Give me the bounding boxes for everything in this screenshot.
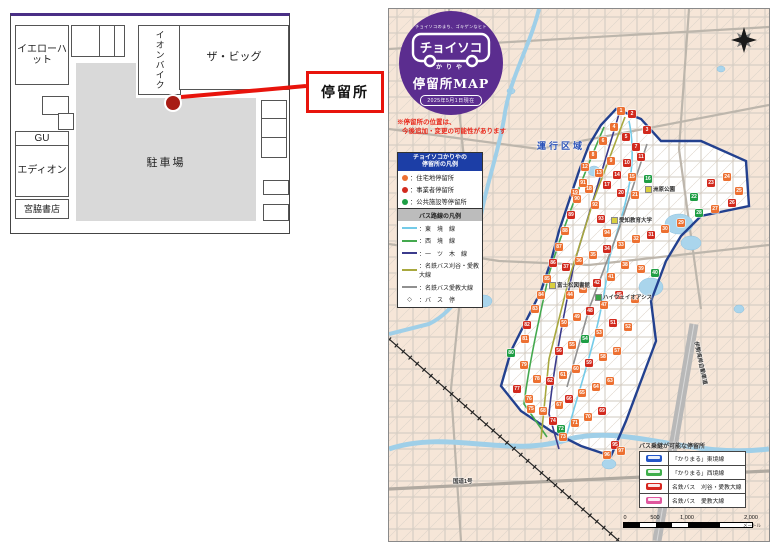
bus-icon-meitetsu-kariya <box>646 483 662 490</box>
stop-marker: 16 <box>644 175 652 183</box>
stop-marker: 59 <box>585 359 593 367</box>
stop-marker: 30 <box>661 225 669 233</box>
legend-row: ：名鉄バス刈谷・愛教大線 <box>398 259 482 281</box>
stop-marker: 92 <box>591 201 599 209</box>
legend-label: ：一 ツ 木 線 <box>419 249 467 258</box>
stop-marker: 74 <box>549 417 557 425</box>
bus-icon-meitetsu <box>646 497 662 504</box>
stop-marker: 87 <box>555 243 563 251</box>
stop-marker: 97 <box>617 447 625 455</box>
stop-marker: 83 <box>531 305 539 313</box>
stop-marker: 44 <box>566 291 574 299</box>
site-diagram: イエローハット GU エディオン 宮脇書店 イオンバイク ザ・ビッグ 駐車場 <box>10 13 290 234</box>
logo-name-text: チョイソコ <box>420 41 483 55</box>
stop-marker: 55 <box>568 341 576 349</box>
small-building <box>261 118 287 139</box>
stop-marker: 35 <box>589 251 597 259</box>
stop-marker: 26 <box>728 199 736 207</box>
transfer-label: 名鉄バス 刈谷・愛教大線 <box>669 480 746 494</box>
transfer-row: 名鉄バス 愛教大線 <box>640 494 746 508</box>
stop-marker: 28 <box>695 209 703 217</box>
business-stop-dot <box>402 187 408 193</box>
stop-marker: 60 <box>572 365 580 373</box>
legend-label: ：名鉄バス刈谷・愛教大線 <box>419 261 480 279</box>
legend-label: ：事業者停留所 <box>410 185 454 194</box>
logo-city: かりや <box>436 62 466 71</box>
stop-marker: 23 <box>707 179 715 187</box>
transfer-row: 名鉄バス 刈谷・愛教大線 <box>640 480 746 494</box>
stop-marker: 75 <box>527 405 535 413</box>
transfer-legend-title: バス乗継が可能な停留所 <box>639 441 746 450</box>
stop-marker: 10 <box>623 159 631 167</box>
route-line-swatch <box>402 286 417 288</box>
legend-row: ：東 境 線 <box>398 221 482 234</box>
route-line-swatch <box>402 240 417 242</box>
small-building <box>71 25 101 57</box>
transfer-legend: バス乗継が可能な停留所 「かりまる」東境線 「かりまる」西境線 名鉄バス 刈谷・… <box>639 441 746 508</box>
stop-marker: 41 <box>607 273 615 281</box>
stop-marker: 80 <box>507 349 515 357</box>
stop-marker: 20 <box>617 189 625 197</box>
stop-marker: 84 <box>537 291 545 299</box>
store-label: エディオン <box>17 165 66 177</box>
store-miyawaki: 宮脇書店 <box>15 199 69 219</box>
stop-marker: 36 <box>575 257 583 265</box>
notice-line2: 今後追加・変更の可能性があります <box>402 127 506 136</box>
stop-marker: 33 <box>617 241 625 249</box>
route-line-swatch <box>402 269 417 271</box>
transfer-label: 「かりまる」東境線 <box>669 452 746 466</box>
stop-marker: 89 <box>567 211 575 219</box>
stop-marker: 37 <box>562 263 570 271</box>
stop-marker: 1 <box>617 107 625 115</box>
stop-marker: 82 <box>523 321 531 329</box>
stop-marker: 12 <box>581 163 589 171</box>
bus-stop-dot <box>164 94 182 112</box>
route-line-swatch <box>402 227 417 229</box>
scale-tick: 2,000 <box>744 515 758 521</box>
stop-marker: 22 <box>690 193 698 201</box>
stop-callout-label: 停留所 <box>306 71 384 113</box>
stop-marker: 48 <box>586 307 594 315</box>
stop-marker: 47 <box>600 301 608 309</box>
legend-label: ：公共施設等停留所 <box>410 197 467 206</box>
stop-marker: 51 <box>609 319 617 327</box>
store-label: ザ・ビッグ <box>207 51 262 64</box>
stop-marker: 49 <box>573 313 581 321</box>
scale-tick: 0 <box>623 515 626 521</box>
store-label: GU <box>35 133 50 145</box>
small-building <box>261 100 287 120</box>
legend-label: ：バ ス 停 <box>419 295 455 304</box>
bus-icon-higashi <box>646 455 662 462</box>
stop-marker: 65 <box>578 389 586 397</box>
store-the-big: ザ・ビッグ <box>179 25 289 90</box>
stop-marker: 68 <box>539 407 547 415</box>
page: イエローハット GU エディオン 宮脇書店 イオンバイク ザ・ビッグ 駐車場 停… <box>0 0 770 544</box>
stop-marker: 17 <box>603 181 611 189</box>
stop-marker: 8 <box>589 151 597 159</box>
scale-tick: 1,000 <box>680 515 694 521</box>
stops-legend-title: チョイソコかりやの 停留所の凡例 <box>398 153 482 171</box>
stop-marker: 72 <box>557 425 565 433</box>
transfer-row: 「かりまる」西境線 <box>640 466 746 480</box>
stop-marker: 52 <box>624 323 632 331</box>
map-place-label: 国道1号 <box>453 477 473 485</box>
notice-text: ※停留所の位置は、 今後追加・変更の可能性があります <box>397 118 506 136</box>
stop-marker: 5 <box>622 133 630 141</box>
stop-marker: 31 <box>647 231 655 239</box>
stop-marker: 54 <box>581 335 589 343</box>
stop-map: 1234567891011121314151617181920212223242… <box>388 8 770 542</box>
stop-marker: 90 <box>573 195 581 203</box>
legend-row: ◇：バ ス 停 <box>398 293 482 308</box>
stop-marker: 58 <box>599 353 607 361</box>
stop-marker: 9 <box>607 157 615 165</box>
stop-marker: 14 <box>613 171 621 179</box>
stop-marker: 25 <box>735 187 743 195</box>
transfer-row: 「かりまる」東境線 <box>640 452 746 466</box>
stop-marker: 3 <box>643 126 651 134</box>
stop-marker: 81 <box>521 335 529 343</box>
stop-marker: 50 <box>560 319 568 327</box>
store-label: 宮脇書店 <box>24 204 60 214</box>
map-place-label: 富士松図書館 <box>549 281 590 289</box>
store-label: イオンバイク <box>154 30 164 90</box>
stop-marker: 62 <box>546 377 554 385</box>
transfer-label: 名鉄バス 愛教大線 <box>669 494 746 508</box>
stop-marker: 21 <box>631 191 639 199</box>
stop-marker: 27 <box>711 205 719 213</box>
stop-marker: 11 <box>637 153 645 161</box>
stop-marker: 39 <box>637 265 645 273</box>
poi-icon <box>549 282 556 289</box>
stop-marker: 63 <box>606 377 614 385</box>
small-building <box>58 113 74 130</box>
scale-bar: 0 500 1,000 2,000 メートル <box>623 515 759 528</box>
store-aeon-bike: イオンバイク <box>138 25 181 95</box>
stop-marker: 6 <box>599 137 607 145</box>
poi-icon <box>611 217 618 224</box>
stop-marker: 66 <box>565 395 573 403</box>
legend-row: ：名鉄バス愛教大線 <box>398 280 482 293</box>
stops-legend: チョイソコかりやの 停留所の凡例 ：住宅地停留所 ：事業者停留所 ：公共施設等停… <box>397 152 483 210</box>
transfer-label: 「かりまる」西境線 <box>669 466 746 480</box>
stop-marker: 78 <box>533 375 541 383</box>
stop-marker: 88 <box>561 227 569 235</box>
legend-label: ：名鉄バス愛教大線 <box>419 283 473 292</box>
small-building <box>263 180 289 195</box>
stop-marker: 4 <box>610 123 618 131</box>
stop-marker: 93 <box>597 215 605 223</box>
stop-marker: 40 <box>651 269 659 277</box>
legend-row: ：事業者停留所 <box>398 183 482 195</box>
store-edion: エディオン <box>15 145 69 197</box>
bus-stop-diamond-icon: ◇ <box>402 296 417 303</box>
stop-marker: 24 <box>723 173 731 181</box>
small-building <box>263 204 289 221</box>
legend-label: ：東 境 線 <box>419 224 455 233</box>
stop-marker: 73 <box>559 433 567 441</box>
residential-stop-dot <box>402 175 408 181</box>
stop-marker: 38 <box>621 261 629 269</box>
public-stop-dot <box>402 199 408 205</box>
map-place-label: 洲原公園 <box>645 185 675 193</box>
map-place-label: 愛知教育大学 <box>611 216 652 224</box>
legend-row: ：一 ツ 木 線 <box>398 246 482 259</box>
stop-marker: 77 <box>513 385 521 393</box>
scale-tick: 500 <box>650 515 659 521</box>
small-building <box>261 137 287 158</box>
stop-marker: 67 <box>555 401 563 409</box>
stop-marker: 7 <box>632 143 640 151</box>
stop-marker: 71 <box>571 419 579 427</box>
stop-marker: 64 <box>592 383 600 391</box>
logo-date: 2025年5月1日現在 <box>420 95 481 106</box>
poi-icon <box>595 294 602 301</box>
choisoko-logo: チョイソコのまち、ゴキゲンなヒト チョイソコ かりや 停留所MAP 2025年5… <box>399 11 503 115</box>
stop-marker: 70 <box>584 413 592 421</box>
stop-marker: 29 <box>677 219 685 227</box>
route-line-swatch <box>402 252 417 254</box>
stop-marker: 96 <box>603 451 611 459</box>
stop-marker: 69 <box>598 407 606 415</box>
notice-line1: ※停留所の位置は、 <box>397 118 506 127</box>
bus-icon-nishi <box>646 469 662 476</box>
small-building <box>114 25 125 57</box>
stop-marker: 32 <box>632 235 640 243</box>
stop-marker: 13 <box>595 169 603 177</box>
legend-row: ：公共施設等停留所 <box>398 195 482 209</box>
stop-marker: 56 <box>555 347 563 355</box>
logo-map-title: 停留所MAP <box>413 73 489 92</box>
stop-marker: 42 <box>593 279 601 287</box>
stop-marker: 79 <box>520 361 528 369</box>
store-label: イエローハット <box>16 44 68 67</box>
routes-legend: バス路線の凡例 ：東 境 線 ：西 境 線 ：一 ツ 木 線 ：名鉄バス刈谷・愛… <box>397 208 483 308</box>
stop-marker: 15 <box>628 173 636 181</box>
stop-marker: 61 <box>559 371 567 379</box>
legend-row: ：住宅地停留所 <box>398 171 482 183</box>
stop-marker: 91 <box>579 179 587 187</box>
scale-bar-strip <box>623 522 753 528</box>
parking-label: 駐車場 <box>121 154 211 170</box>
stop-marker: 2 <box>628 110 636 118</box>
stop-marker: 94 <box>603 229 611 237</box>
map-place-label: ハイウェイオアシス <box>595 293 652 301</box>
stop-marker: 57 <box>613 347 621 355</box>
scale-ticks: 0 500 1,000 2,000 <box>623 515 759 522</box>
routes-legend-title: バス路線の凡例 <box>398 209 482 221</box>
stop-marker: 86 <box>549 259 557 267</box>
transfer-table: 「かりまる」東境線 「かりまる」西境線 名鉄バス 刈谷・愛教大線 名鉄バス 愛教… <box>639 451 746 508</box>
stop-marker: 53 <box>595 329 603 337</box>
store-yellow-hat: イエローハット <box>15 25 69 85</box>
legend-label: ：西 境 線 <box>419 236 455 245</box>
stop-marker: 34 <box>603 245 611 253</box>
service-area-label: 運行区域 <box>537 139 585 152</box>
scale-unit: メートル <box>743 523 761 529</box>
stop-marker: 76 <box>525 395 533 403</box>
legend-row: ：西 境 線 <box>398 234 482 247</box>
legend-label: ：住宅地停留所 <box>410 173 454 182</box>
poi-icon <box>645 186 652 193</box>
